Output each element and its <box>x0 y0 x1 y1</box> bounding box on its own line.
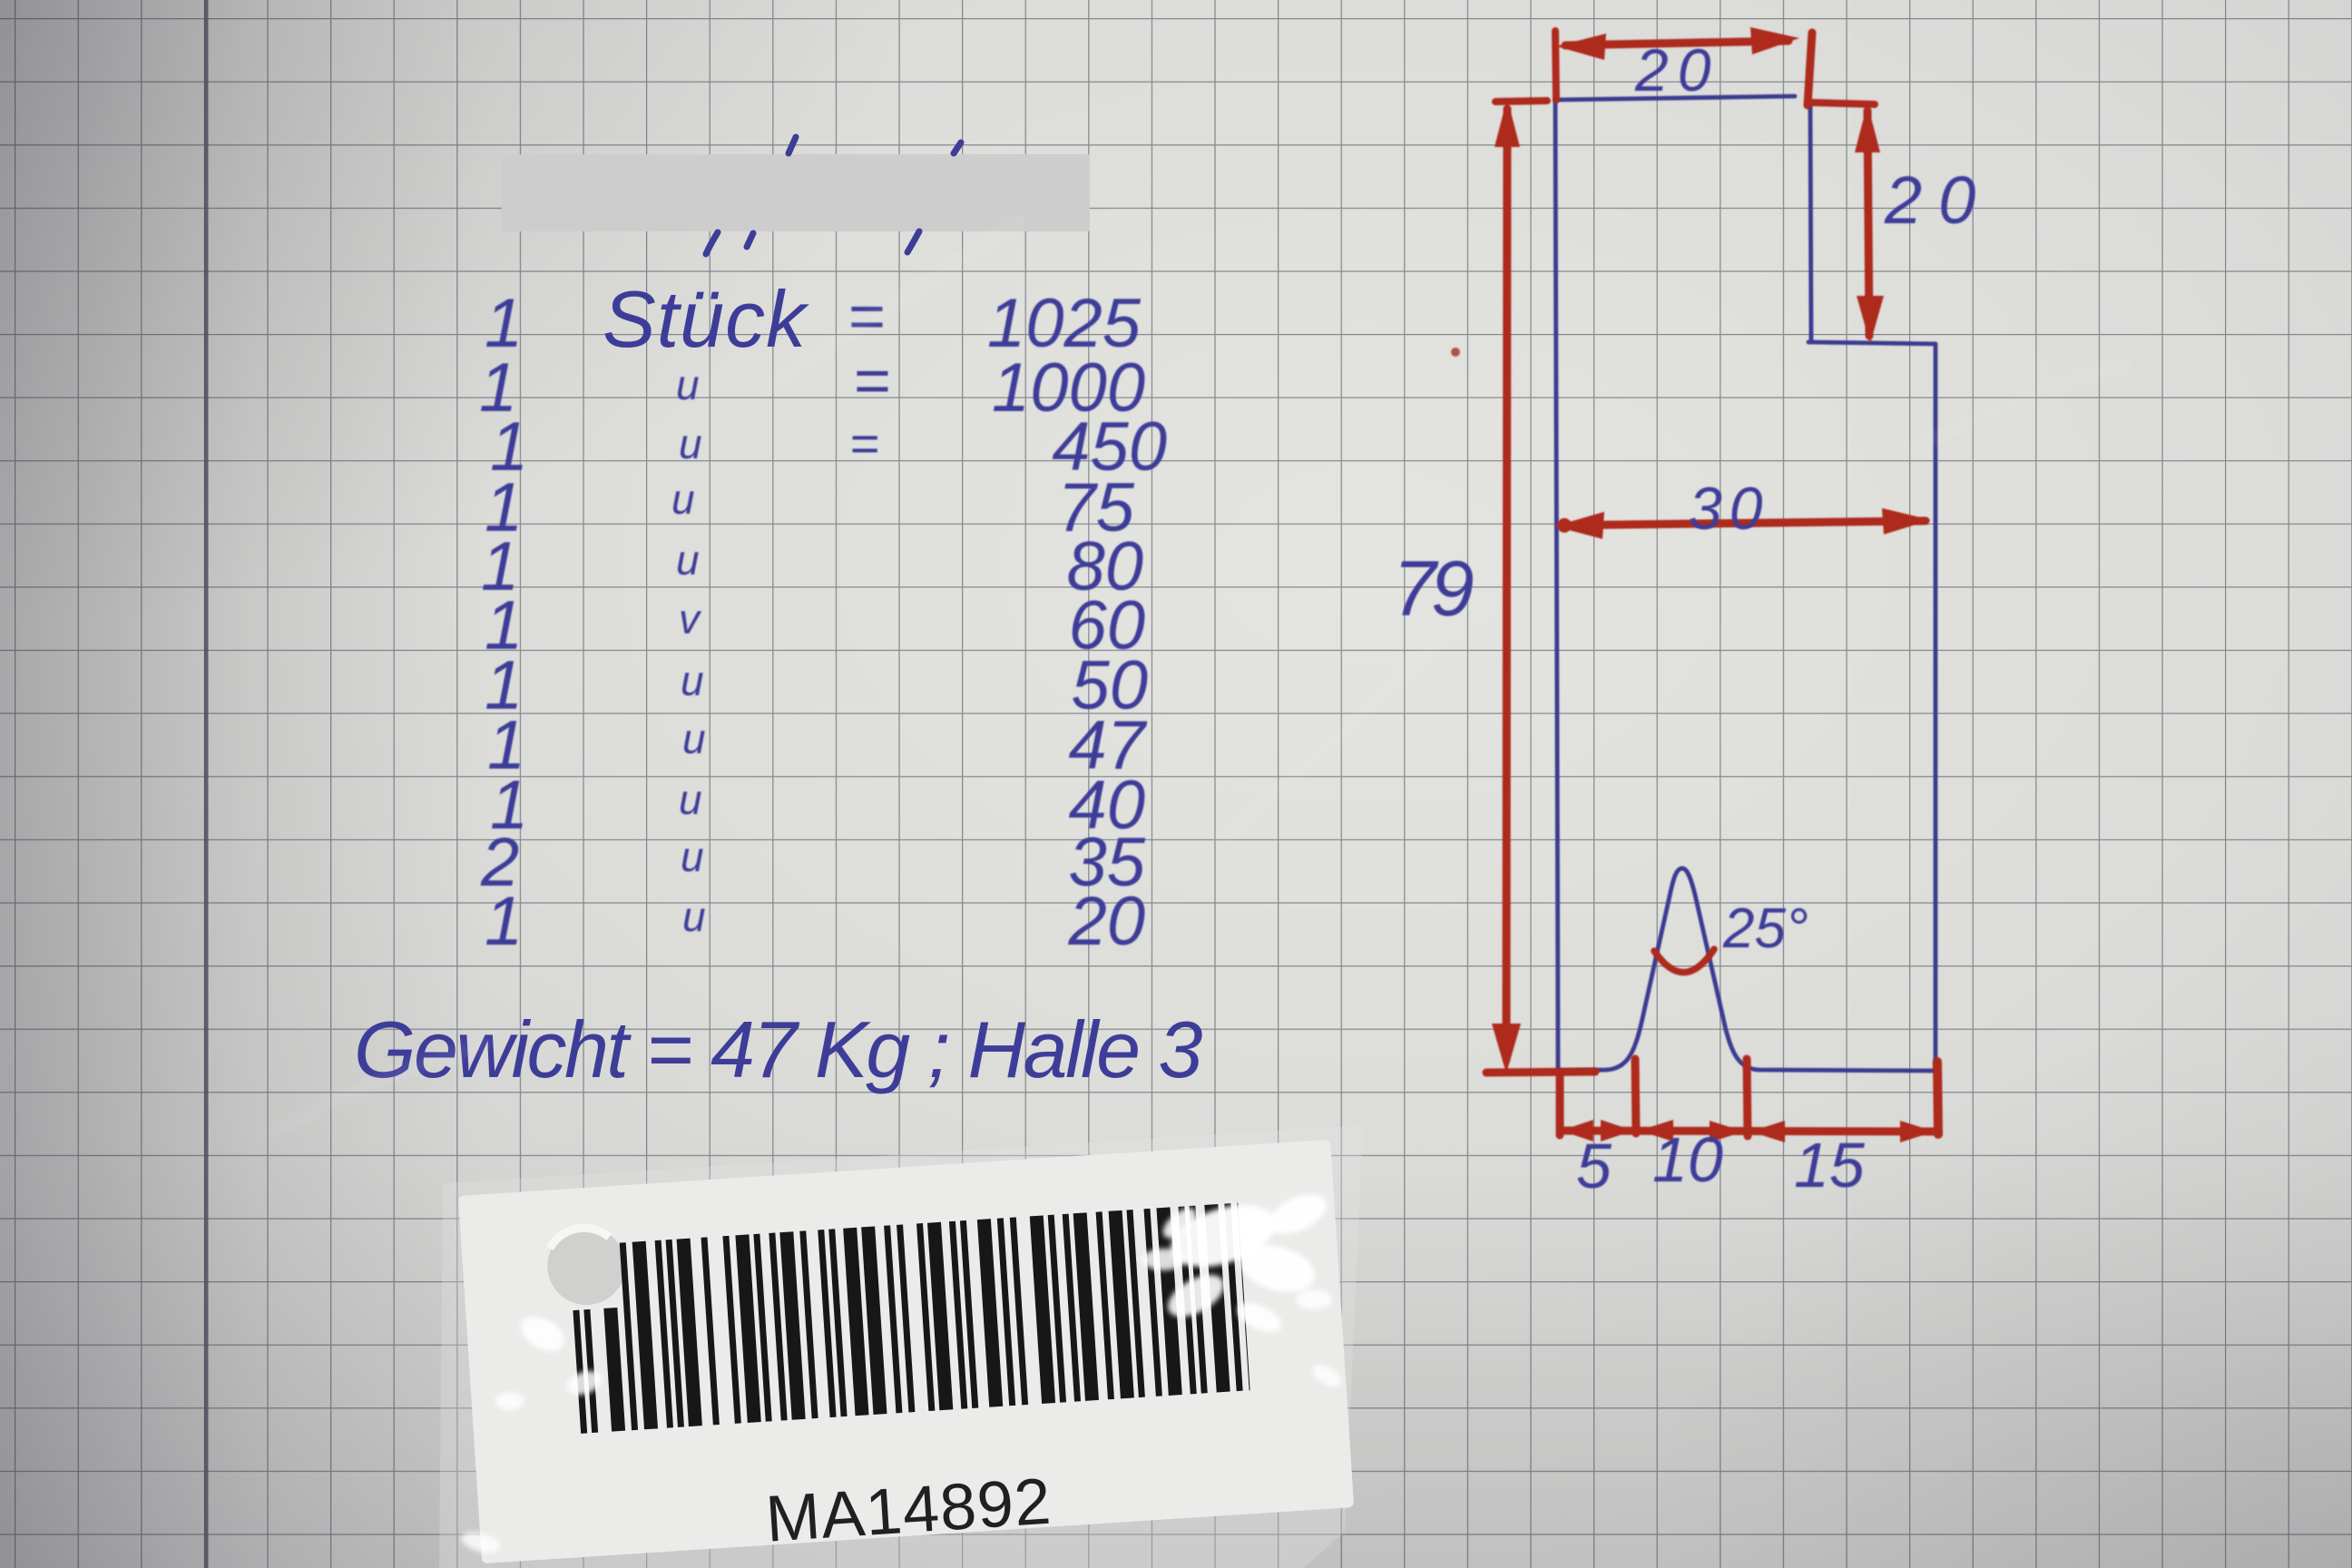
svg-text:30: 30 <box>1689 475 1769 542</box>
svg-text:20: 20 <box>1884 162 1992 238</box>
svg-text:u: u <box>681 657 704 704</box>
svg-text:15: 15 <box>1794 1130 1866 1200</box>
svg-text:u: u <box>671 475 695 523</box>
svg-text:u: u <box>682 893 706 940</box>
svg-text:20: 20 <box>1634 36 1720 103</box>
svg-text:u: u <box>676 361 700 408</box>
svg-text:Stück: Stück <box>603 274 809 364</box>
svg-text:20: 20 <box>1067 883 1145 960</box>
svg-text:10: 10 <box>1652 1124 1723 1195</box>
svg-text:=: = <box>849 415 879 472</box>
svg-text:1: 1 <box>485 883 523 960</box>
svg-text:u: u <box>679 420 702 467</box>
svg-text:u: u <box>682 715 706 762</box>
svg-text:u: u <box>676 536 700 583</box>
svg-text:79: 79 <box>1393 545 1474 632</box>
svg-text:u: u <box>679 776 702 823</box>
svg-text:25°: 25° <box>1722 897 1808 960</box>
svg-text:=: = <box>853 345 890 416</box>
svg-text:u: u <box>681 833 704 880</box>
svg-text:v: v <box>679 595 702 642</box>
svg-text:5: 5 <box>1576 1131 1612 1201</box>
